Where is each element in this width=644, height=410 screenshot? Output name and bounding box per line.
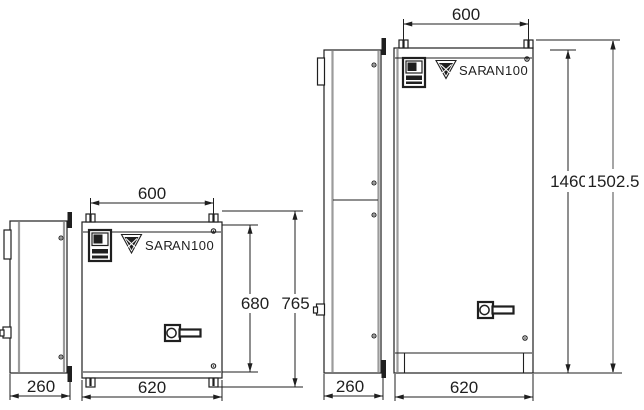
dim-overall-width-label: 620 <box>450 378 478 397</box>
dim-body-height-label: 1460 <box>550 172 588 191</box>
front-body <box>394 48 533 373</box>
dim-top-width-label: 600 <box>452 5 480 24</box>
dim-depth-label: 260 <box>336 377 364 396</box>
mounting-lug <box>209 214 218 222</box>
mounting-bracket-top <box>68 212 73 228</box>
dim-overall-height-label: 765 <box>281 294 309 313</box>
dim-top-width-label: 600 <box>138 184 166 203</box>
brand-label: SAR <box>145 238 173 253</box>
dim-depth-label: 260 <box>27 377 55 396</box>
handle-side-knob <box>0 330 4 336</box>
mounting-lug <box>524 40 533 48</box>
model-label: AN100 <box>172 238 214 253</box>
large-cabinet-front-view: SAR AN100 <box>394 40 533 373</box>
small-cabinet-side-view <box>0 212 72 382</box>
mounting-bracket-top <box>382 38 387 55</box>
mounting-bracket-bottom <box>382 360 387 378</box>
brand-label: SAR <box>459 63 487 78</box>
dim-overall-height-label: 1502.5 <box>588 172 640 191</box>
dim-door-height-label: 680 <box>241 294 269 313</box>
model-label: AN100 <box>486 63 528 78</box>
handle-side-knob <box>314 307 318 313</box>
controller-side-profile <box>4 230 11 259</box>
foot <box>86 378 95 387</box>
controller-icon <box>403 58 425 87</box>
dim-overall-width-label: 620 <box>138 378 166 397</box>
mounting-lug <box>86 214 95 222</box>
dim-line-overall-height <box>610 40 615 373</box>
controller-side-profile <box>318 58 325 85</box>
controller-icon <box>89 230 111 261</box>
foot <box>209 378 218 387</box>
small-cabinet-front-view: SAR AN100 <box>82 214 222 387</box>
dimension-drawing: SAR AN100 600 620 <box>0 0 644 410</box>
large-cabinet-side-view <box>314 38 387 378</box>
mounting-lug <box>399 40 408 48</box>
